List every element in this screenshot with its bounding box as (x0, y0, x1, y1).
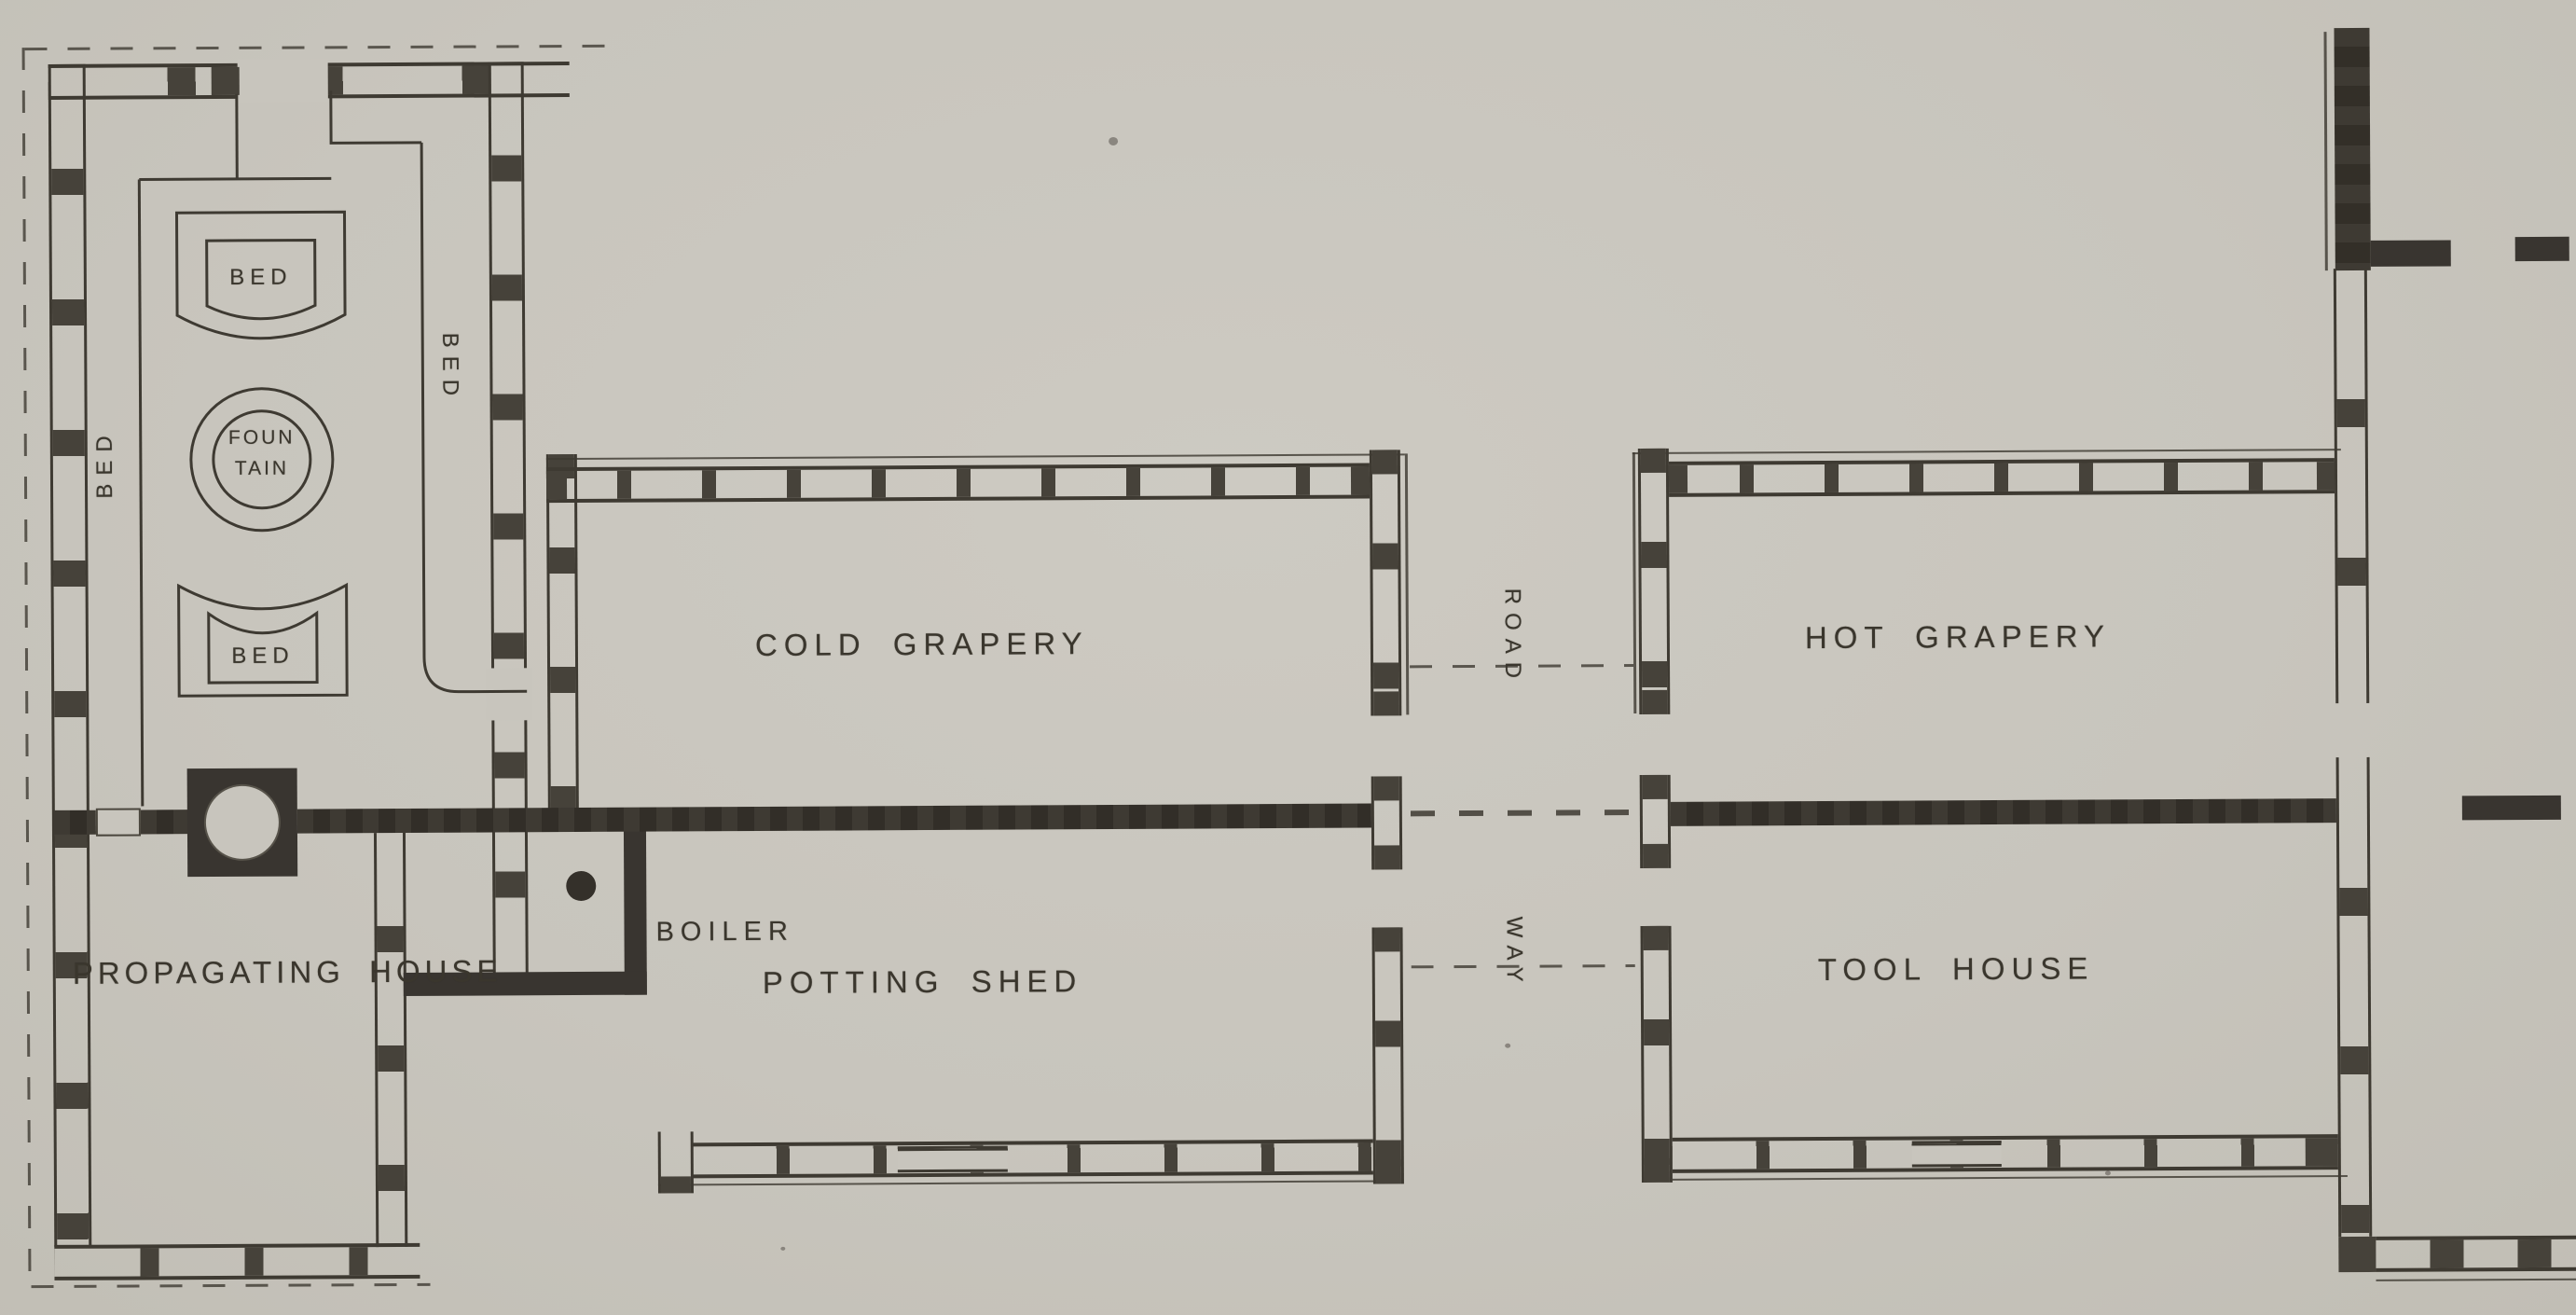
label-way: WAY (1500, 917, 1527, 1038)
room-label-potting-shed: POTTING SHED (763, 963, 1083, 1001)
label-bed-top: BED (214, 265, 308, 292)
floor-plan: PROPAGATING HOUSE COLD GRAPERY HOT GRAPE… (0, 0, 2576, 1315)
room-label-propagating-house: PROPAGATING HOUSE (73, 953, 503, 990)
boiler-dot (566, 871, 596, 901)
room-label-tool-house: TOOL HOUSE (1818, 950, 2095, 988)
label-bed-left: BED (91, 359, 118, 499)
tank-circle (205, 785, 280, 860)
fountain-text-line1: FOUN (206, 422, 318, 453)
path-line (139, 178, 331, 179)
label-road: ROAD (1499, 588, 1526, 719)
paper-speck (780, 1247, 785, 1251)
path-line (331, 90, 421, 144)
label-boiler: BOILER (655, 917, 794, 948)
label-bed-bottom: BED (216, 643, 310, 670)
scanned-plan-page: PROPAGATING HOUSE COLD GRAPERY HOT GRAPE… (0, 0, 2576, 1315)
label-bed-right: BED (436, 333, 463, 473)
room-label-cold-grapery: COLD GRAPERY (755, 626, 1089, 663)
label-fountain: FOUN TAIN (206, 422, 318, 484)
plan-linework (0, 0, 2576, 1315)
paper-speck (2105, 1170, 2111, 1175)
path-line (139, 179, 143, 806)
room-label-hot-grapery: HOT GRAPERY (1805, 618, 2111, 656)
bed-bottom-outer-border (179, 585, 348, 696)
paper-speck (1505, 1044, 1510, 1048)
fountain-text-line2: TAIN (206, 453, 318, 484)
paper-speck (1109, 137, 1118, 145)
